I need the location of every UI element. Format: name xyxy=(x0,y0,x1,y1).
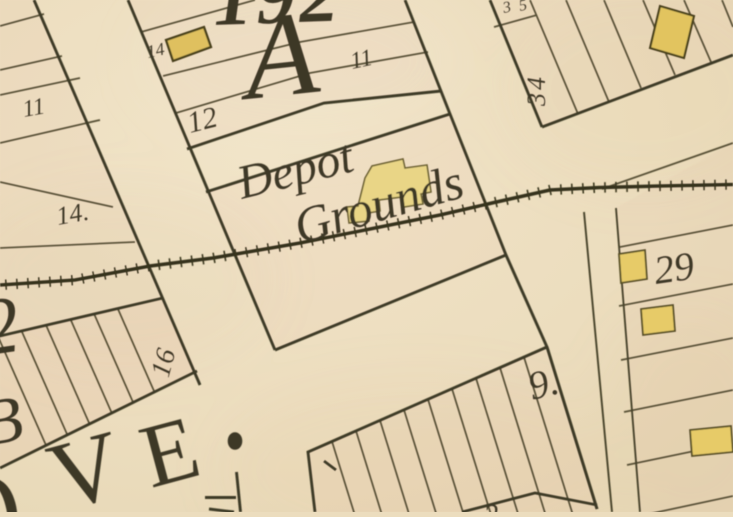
svg-text:29: 29 xyxy=(651,243,697,293)
svg-text:34: 34 xyxy=(522,74,551,107)
svg-text:11: 11 xyxy=(21,93,47,122)
svg-text:14.: 14. xyxy=(54,197,91,231)
